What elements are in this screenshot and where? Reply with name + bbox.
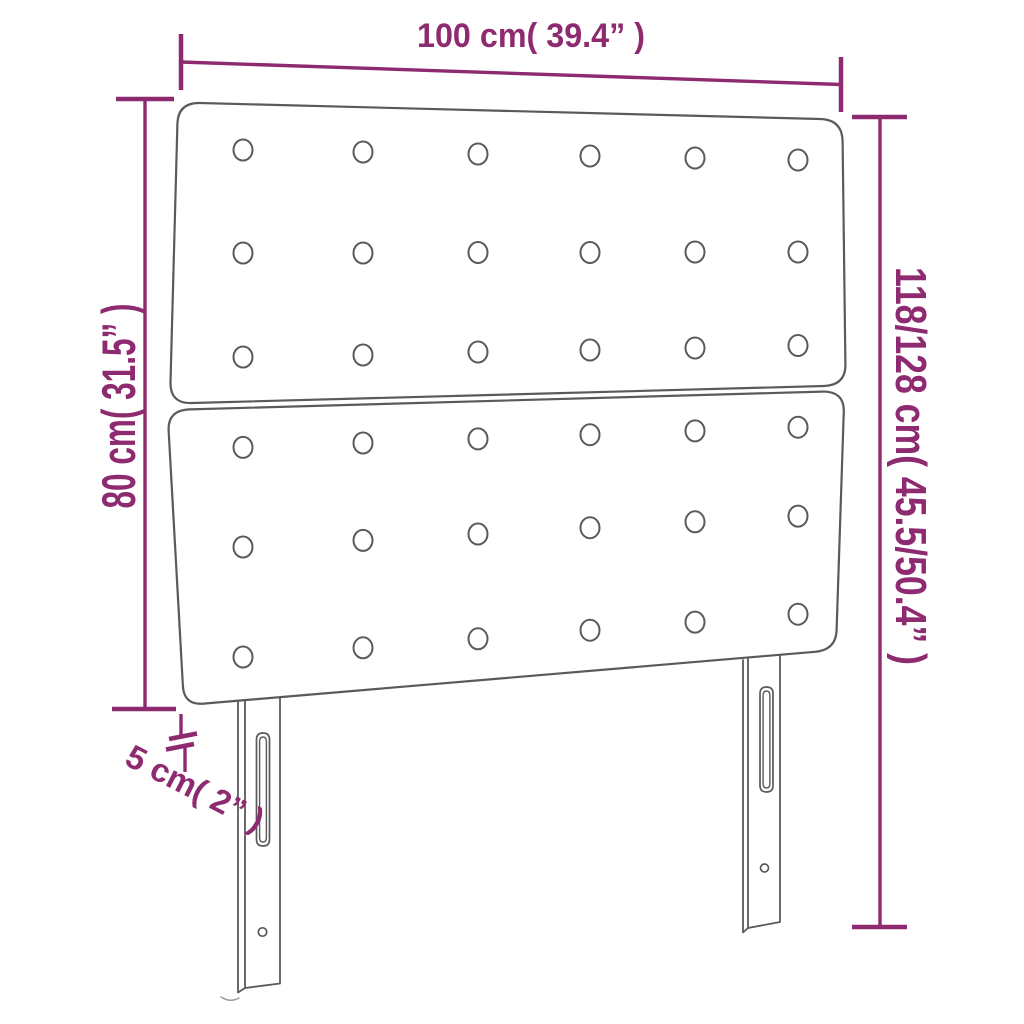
left-leg-screw-hole: [258, 928, 266, 936]
left-leg-front-face: [245, 698, 280, 989]
depth-tick-lower: [166, 744, 194, 750]
upper-panel-outline: [170, 103, 845, 403]
tufting-buttons-upper: [234, 140, 808, 368]
board-height-dimension-label: 80 cm( 31.5” ): [92, 304, 145, 509]
left-leg-slot-outer: [257, 733, 270, 846]
right-leg-screw-hole: [761, 864, 769, 872]
headboard-upper-panel: [170, 103, 845, 403]
depth-tick-upper: [169, 734, 197, 740]
lower-panel-outline: [169, 392, 844, 704]
width-dimension: 100 cm( 39.4” ): [181, 17, 841, 112]
left-leg-slot-inner: [260, 737, 267, 842]
headboard-diagram-svg: 100 cm( 39.4” ) 80 cm( 31.5” ) 118/128 c…: [0, 0, 1024, 1024]
depth-dimension: 5 cm( 2” ): [120, 714, 270, 838]
total-height-dimension-label: 118/128 cm( 45.5/50.4” ): [886, 267, 935, 665]
right-leg-slot-inner: [763, 691, 770, 788]
left-leg-side-face: [238, 702, 245, 993]
left-leg: [221, 698, 280, 1001]
depth-dimension-label: 5 cm( 2” ): [120, 737, 270, 838]
left-leg-ground-shadow: [221, 997, 239, 1000]
width-dimension-line: [181, 62, 841, 85]
width-dimension-label: 100 cm( 39.4” ): [417, 17, 645, 55]
right-leg: [743, 655, 780, 933]
headboard-lower-panel: [169, 392, 844, 704]
tufting-buttons-lower: [234, 417, 808, 668]
total-height-dimension: 118/128 cm( 45.5/50.4” ): [852, 117, 935, 927]
right-leg-slot-outer: [760, 687, 773, 792]
board-height-dimension: 80 cm( 31.5” ): [92, 99, 176, 709]
headboard-dimension-diagram: 100 cm( 39.4” ) 80 cm( 31.5” ) 118/128 c…: [0, 0, 1024, 1024]
